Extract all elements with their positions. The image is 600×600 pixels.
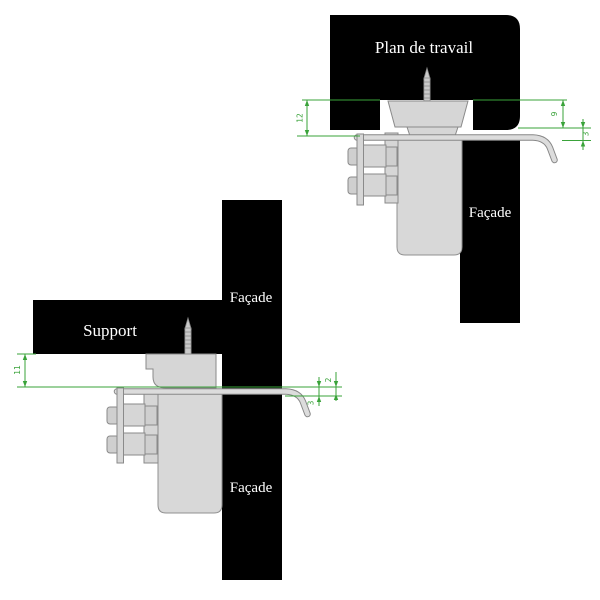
bolt-pass-upper <box>385 147 397 166</box>
arrow-up-icon <box>317 396 321 402</box>
l-bracket-flange <box>357 134 364 205</box>
installation-diagram-page: Plan de travail Façade <box>0 0 600 600</box>
dimension-outer-3: 3 <box>562 119 591 150</box>
arrow-up-icon <box>305 100 309 106</box>
support-label: Support <box>83 321 137 340</box>
dimension-value: 3 <box>582 131 591 136</box>
support-mount-diagram: Façade Façade Support <box>13 200 342 580</box>
groove-bracket <box>388 101 468 127</box>
dimension-inner-9: 9 <box>518 100 591 128</box>
worktop-label: Plan de travail <box>375 38 473 57</box>
diagram-canvas: Plan de travail Façade <box>0 0 600 600</box>
arrow-up-icon <box>581 141 585 147</box>
groove-bracket <box>146 354 216 388</box>
arrow-up-icon <box>561 100 565 106</box>
facade-label-lower: Façade <box>230 480 273 496</box>
facade-label: Façade <box>469 205 512 221</box>
arrow-down-icon <box>305 130 309 136</box>
l-bracket-flange <box>117 388 124 463</box>
dimension-value: 3 <box>307 400 316 405</box>
dimension-value: 12 <box>296 113 305 123</box>
arrow-down-icon <box>334 381 338 387</box>
facade-label-upper: Façade <box>230 290 273 306</box>
arrow-down-icon <box>581 122 585 128</box>
dimension-value: 11 <box>13 365 22 375</box>
adjustment-body <box>158 390 222 513</box>
bolt-pass-upper <box>144 406 157 425</box>
bolt-pass-lower <box>144 435 157 454</box>
dimension-value: 9 <box>550 111 559 116</box>
arrow-down-icon <box>23 381 27 387</box>
worktop-mount-diagram: Plan de travail Façade <box>296 15 592 323</box>
dimension-value: 2 <box>324 377 333 382</box>
adjustment-body <box>397 135 462 255</box>
facade-panel <box>460 140 520 323</box>
arrow-up-icon <box>334 394 338 400</box>
arrow-down-icon <box>561 122 565 128</box>
arrow-up-icon <box>23 354 27 360</box>
arrow-down-icon <box>317 381 321 387</box>
bolt-pass-lower <box>385 176 397 195</box>
